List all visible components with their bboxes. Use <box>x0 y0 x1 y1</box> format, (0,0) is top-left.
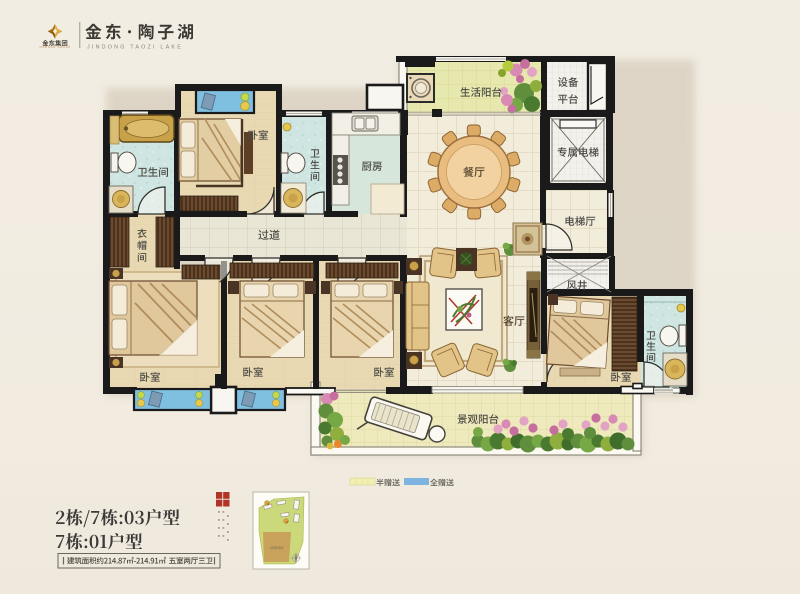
svg-text:JINDONG TAOZI LAKE: JINDONG TAOZI LAKE <box>87 45 183 51</box>
svg-text:JINDONG GROUP: JINDONG GROUP <box>39 45 71 49</box>
